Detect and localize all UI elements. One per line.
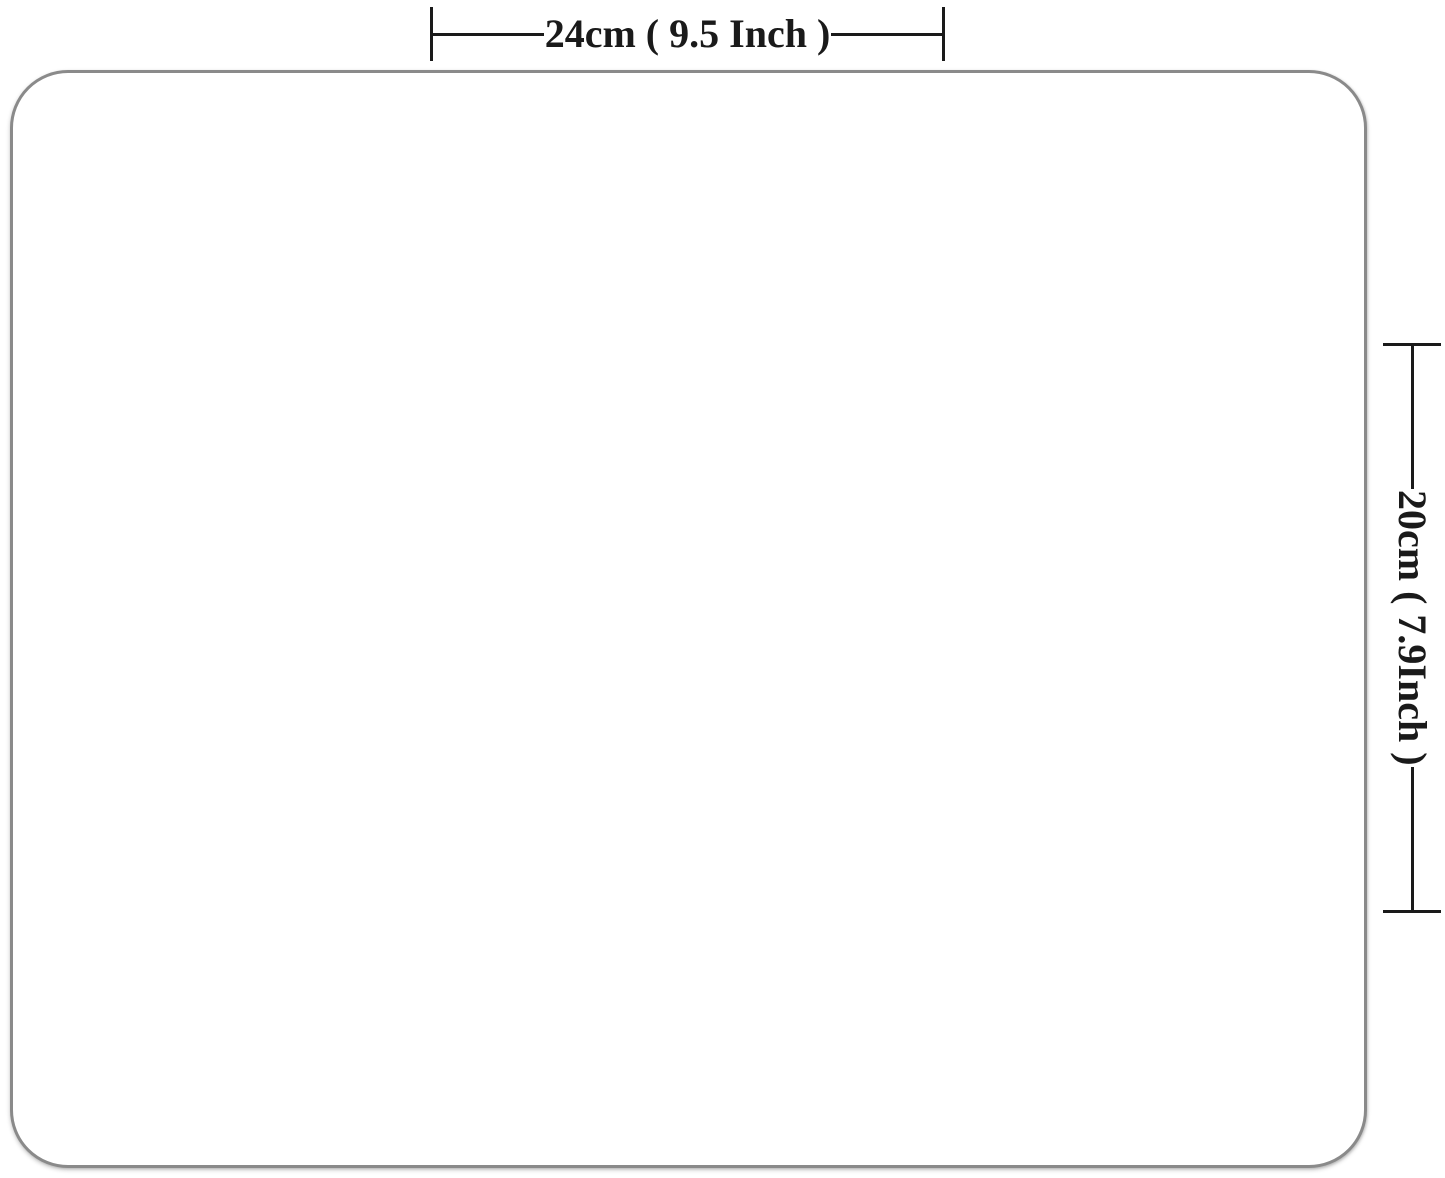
- dimension-line-right: [831, 33, 942, 36]
- height-dimension: 20cm ( 7.9Inch ): [1383, 343, 1441, 913]
- product-dimension-diagram: 24cm ( 9.5 Inch ) 20cm ( 7.9Inch ): [0, 0, 1445, 1178]
- height-dimension-label: 20cm ( 7.9Inch ): [1392, 489, 1432, 767]
- dimension-line-top: [1411, 346, 1414, 489]
- dimension-line-bottom: [1411, 767, 1414, 910]
- dimension-tick-bottom: [1383, 910, 1441, 913]
- dimension-line-left: [433, 33, 544, 36]
- mouse-pad: [10, 70, 1367, 1168]
- width-dimension-label: 24cm ( 9.5 Inch ): [544, 14, 832, 54]
- width-dimension: 24cm ( 9.5 Inch ): [430, 7, 945, 61]
- dimension-tick-right: [942, 7, 945, 61]
